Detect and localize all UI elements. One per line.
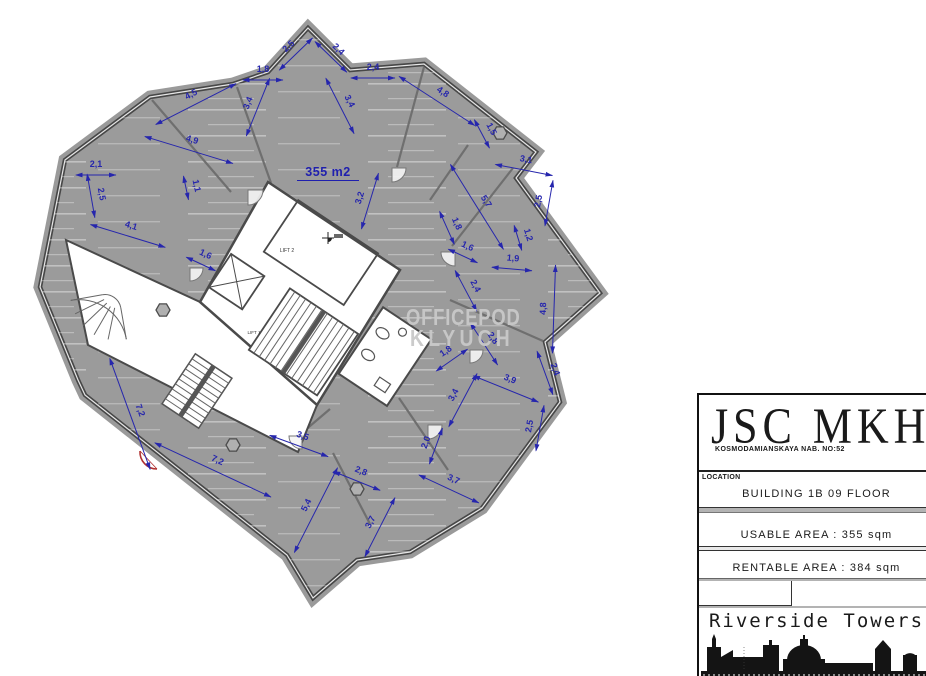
floor-plan-drawing: LIFT 2 LIFT 1 2,52,41,84,53,43,42,44,81,… — [0, 0, 660, 676]
skyline-silhouette — [699, 633, 926, 676]
location-label: LOCATION — [702, 474, 740, 481]
title-block: JSC MKH KOSMODAMIANSKAYA NAB. NO:52 LOCA… — [697, 393, 926, 676]
floor-plan-sheet: LIFT 2 LIFT 1 2,52,41,84,53,43,42,44,81,… — [0, 0, 926, 676]
svg-text:4,8: 4,8 — [538, 302, 548, 315]
stamp-box — [699, 581, 792, 606]
lift1-label: LIFT 1 — [248, 330, 261, 335]
svg-text:2,5: 2,5 — [523, 419, 535, 433]
svg-text:1,9: 1,9 — [506, 253, 519, 264]
company-section: JSC MKH KOSMODAMIANSKAYA NAB. NO:52 — [699, 397, 926, 470]
stamp-row — [699, 581, 926, 608]
usable-area: USABLE AREA : 355 sqm — [699, 513, 926, 546]
watermark: OFFICEPOD KLYUCH — [392, 307, 532, 349]
svg-text:2,5: 2,5 — [532, 194, 544, 208]
company-name: JSC MKH — [711, 397, 926, 455]
lift2-label: LIFT 2 — [280, 248, 295, 254]
project-name: Riverside Towers — [699, 608, 926, 632]
area-label: 355 m2 — [297, 165, 359, 181]
location-section: LOCATION BUILDING 1B 09 FLOOR — [699, 472, 926, 507]
svg-text:2,5: 2,5 — [96, 187, 108, 201]
watermark-line2: KLYUCH — [403, 328, 521, 349]
svg-text:2,4: 2,4 — [367, 62, 380, 72]
rentable-area: RENTABLE AREA : 384 sqm — [699, 551, 926, 578]
svg-text:2,1: 2,1 — [90, 159, 103, 169]
svg-text:1,8: 1,8 — [257, 64, 270, 74]
